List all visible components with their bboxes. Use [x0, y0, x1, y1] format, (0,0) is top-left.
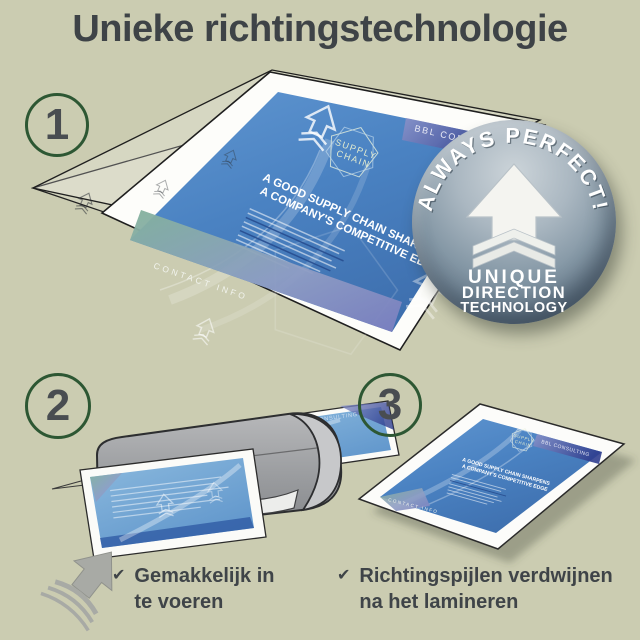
step-2-number: 2	[25, 373, 91, 439]
badge-line3: TECHNOLOGY	[460, 300, 567, 316]
always-perfect-badge: ALWAYS PERFECT! ALWAYS PERFECT! UNIQUE D…	[412, 120, 616, 324]
check-icon: ✔	[337, 563, 350, 587]
caption-text: Gemakkelijk in te voeren	[134, 563, 288, 615]
badge-up-arrow-icon	[467, 164, 561, 268]
check-icon: ✔	[112, 563, 125, 587]
caption-text: Richtingspijlen verdwijnen na het lamine…	[359, 563, 632, 615]
step2-laminator-figure: BBL CONSULTING	[52, 401, 399, 559]
caption-easy-feed: ✔ Gemakkelijk in te voeren	[112, 563, 288, 615]
badge-art: ALWAYS PERFECT! ALWAYS PERFECT! UNIQUE D…	[412, 120, 616, 324]
step-1-number: 1	[25, 93, 89, 157]
caption-arrows-disappear: ✔ Richtingspijlen verdwijnen na het lami…	[337, 563, 632, 615]
step-3-number: 3	[358, 373, 422, 437]
laminator-infographic: Unieke richtingstechnologie	[0, 0, 640, 640]
